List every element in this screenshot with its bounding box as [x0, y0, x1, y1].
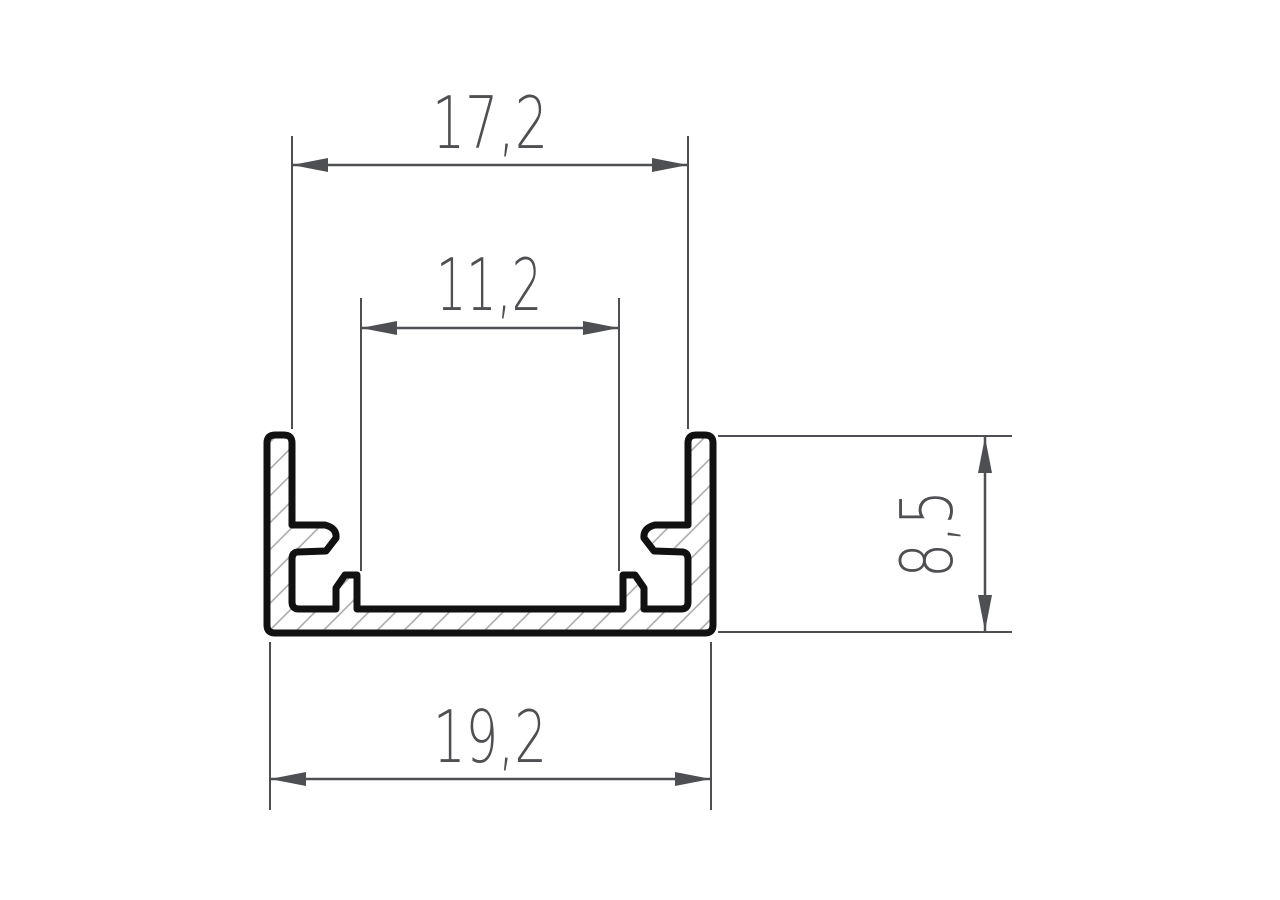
- arrowhead-up-icon: [978, 437, 992, 473]
- profile-cross-section: [267, 435, 713, 633]
- arrowhead-down-icon: [978, 595, 992, 631]
- arrowhead-left-icon: [270, 772, 306, 786]
- drawing-canvas: 17,2 11,2 8,5 19,2: [0, 0, 1280, 900]
- technical-drawing: 17,2 11,2 8,5 19,2: [0, 0, 1280, 900]
- dimension-seat-inner-width: 11,2: [361, 243, 619, 571]
- dimension-label: 11,2: [436, 243, 542, 327]
- dimension-label: 17,2: [432, 81, 548, 165]
- arrowhead-right-icon: [652, 158, 688, 172]
- arrowhead-left-icon: [292, 158, 328, 172]
- dimension-side-height: 8,5: [718, 436, 1012, 632]
- arrowhead-right-icon: [583, 321, 619, 335]
- arrowhead-right-icon: [675, 772, 711, 786]
- dimension-label: 8,5: [885, 490, 969, 578]
- dimension-overall-width: 19,2: [270, 642, 711, 810]
- arrowhead-left-icon: [361, 321, 397, 335]
- dimension-label: 19,2: [433, 695, 547, 779]
